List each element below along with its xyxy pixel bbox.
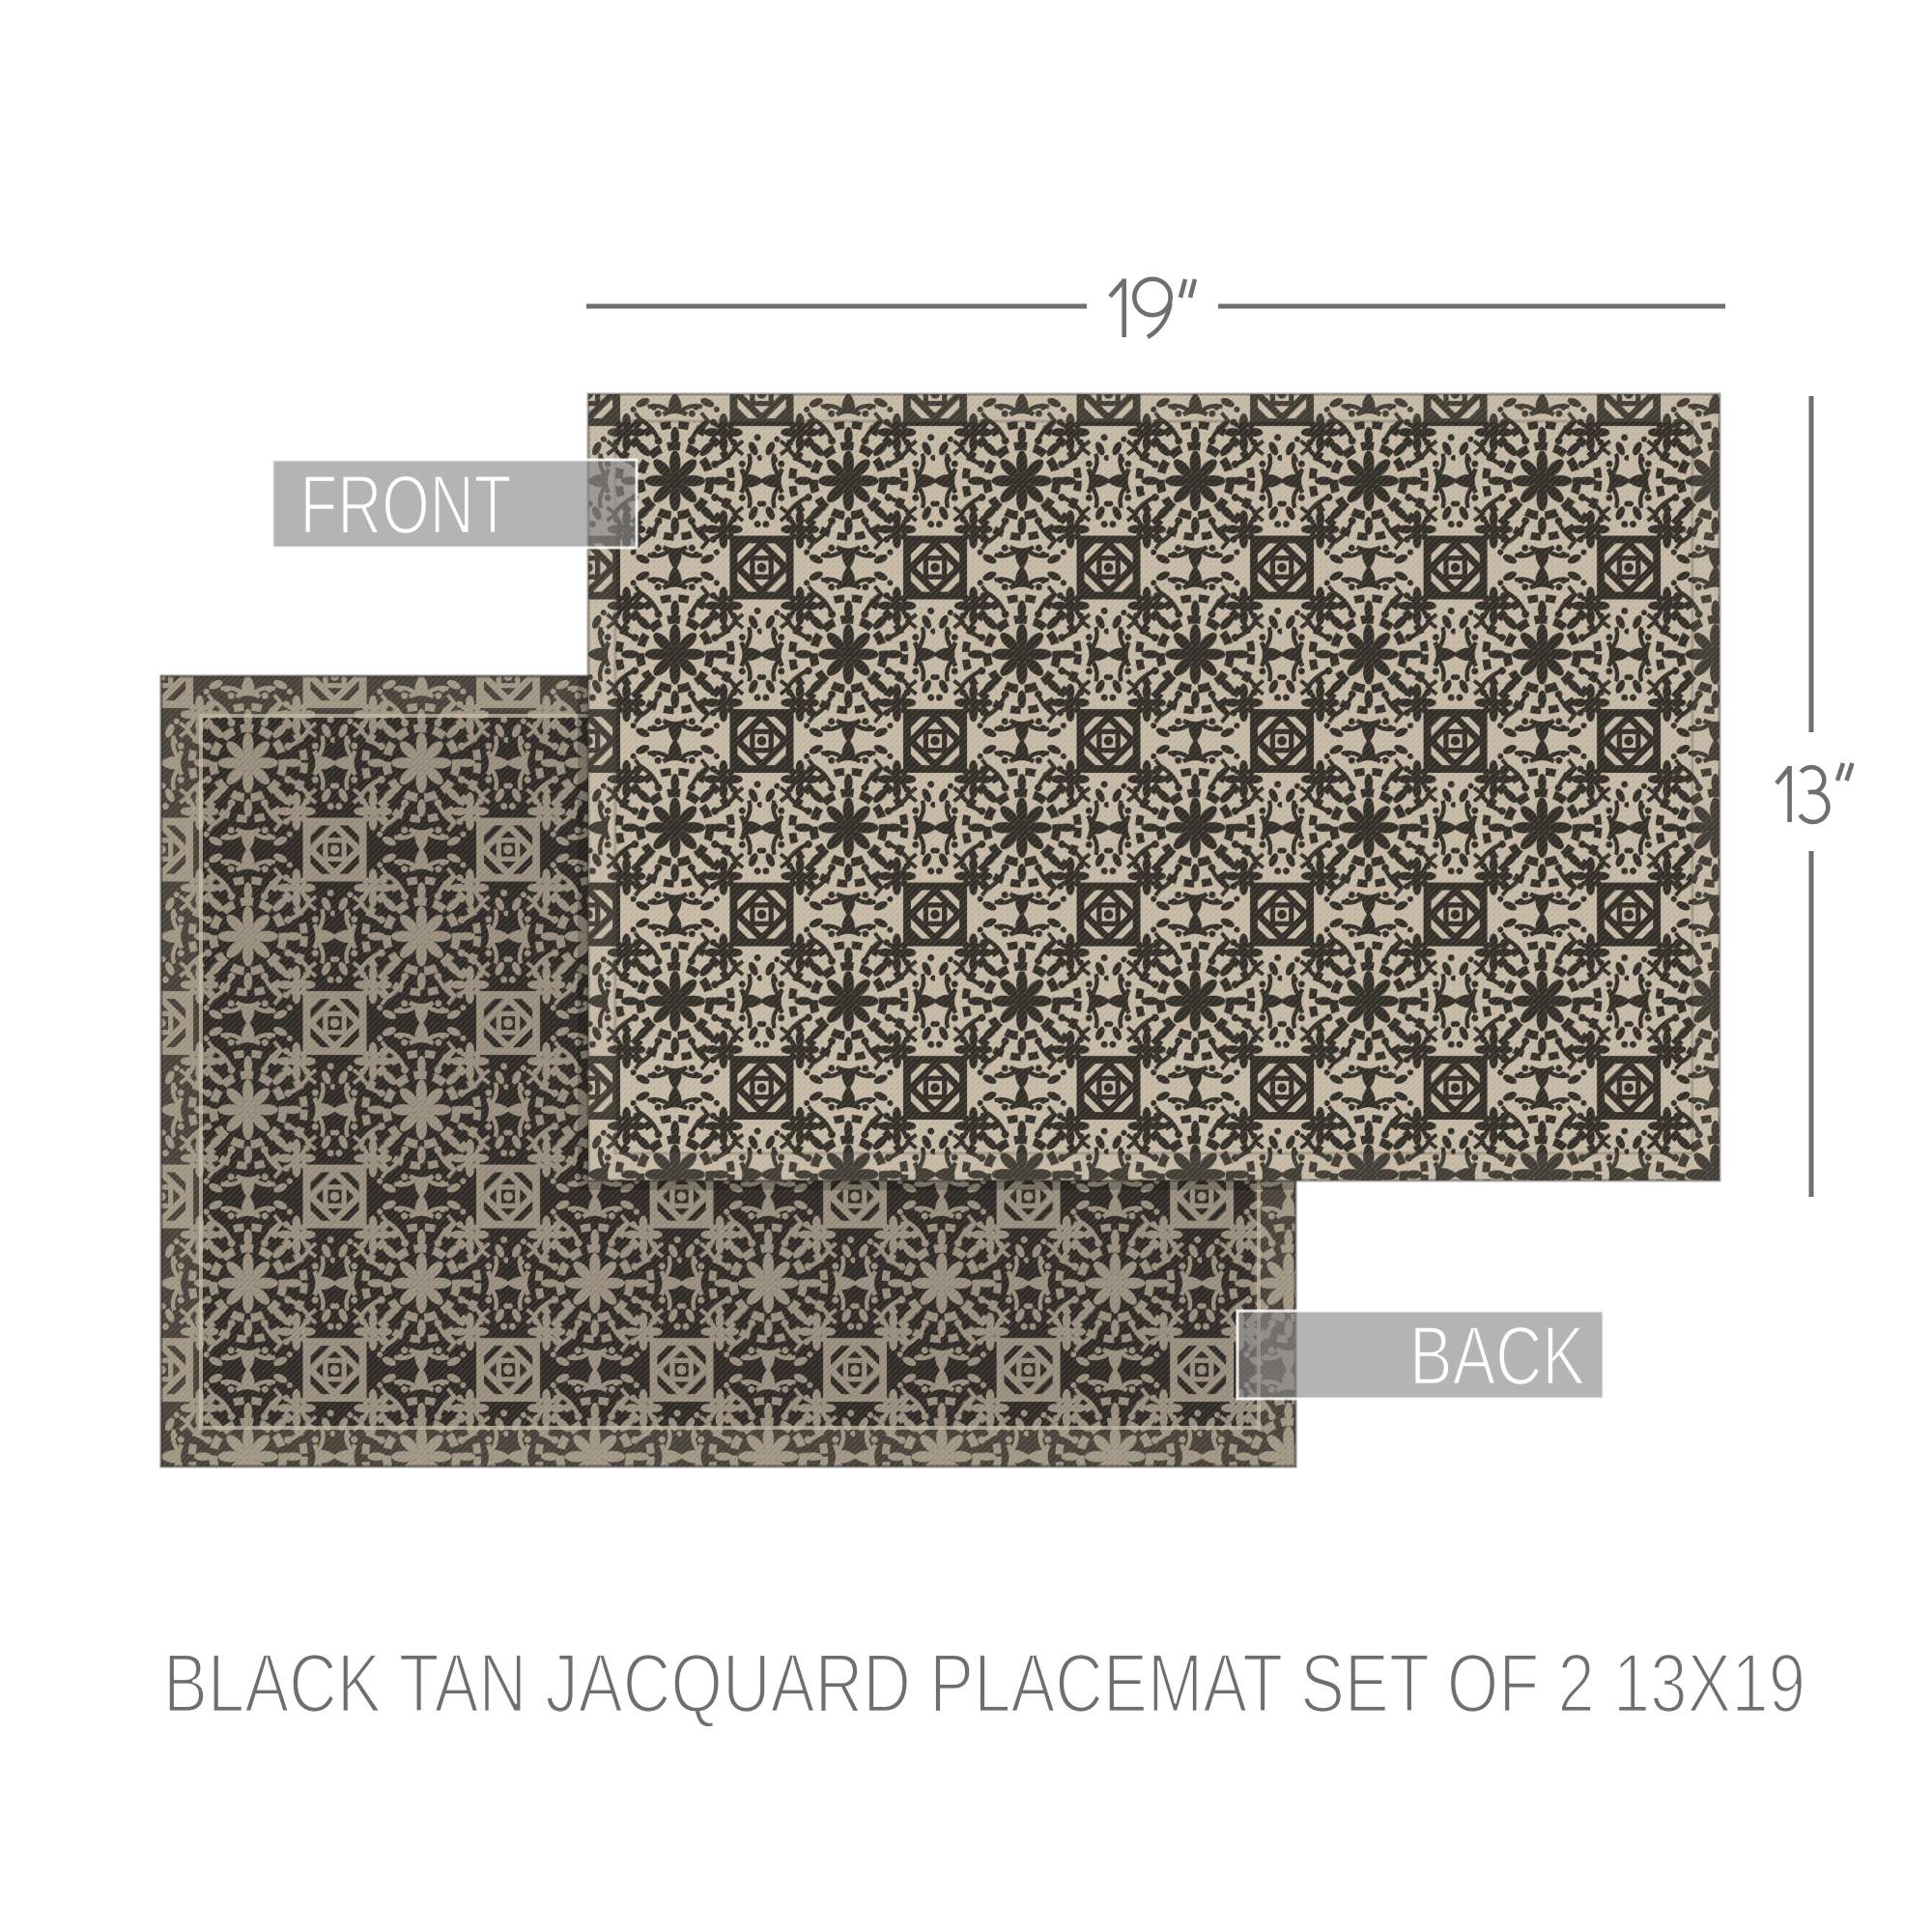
svg-text:FRONT: FRONT <box>300 459 512 552</box>
svg-text:BACK: BACK <box>1409 1310 1585 1403</box>
svg-text:BLACK TAN JACQUARD PLACEMAT SE: BLACK TAN JACQUARD PLACEMAT SET OF 2 13X… <box>163 1637 1805 1730</box>
